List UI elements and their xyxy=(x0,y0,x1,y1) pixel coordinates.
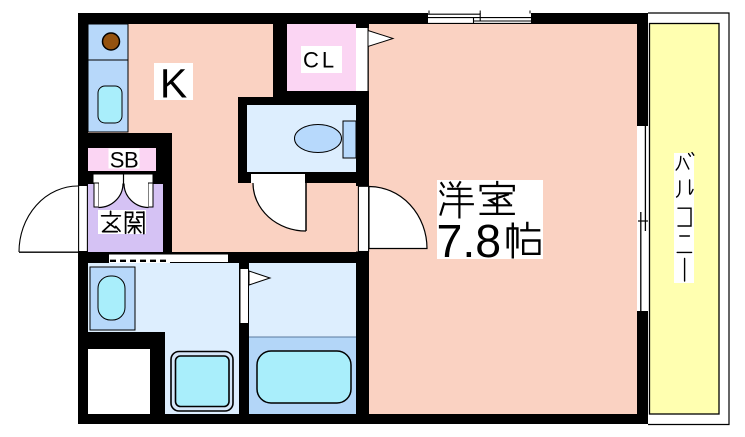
svg-text:CL: CL xyxy=(303,48,337,73)
svg-text:7.8: 7.8 xyxy=(437,215,502,267)
svg-text:SB: SB xyxy=(110,147,138,172)
svg-text:K: K xyxy=(160,61,187,107)
